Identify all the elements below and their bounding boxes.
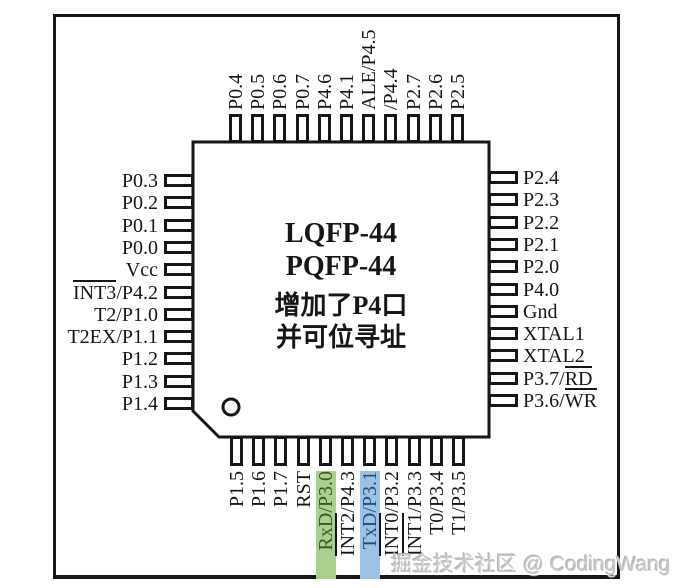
pin-signal: P2.3 (523, 189, 559, 211)
pin-label-14: XTAL2 (523, 346, 655, 366)
pin-lead-39 (164, 286, 194, 299)
pin-label-42: P1.2 (38, 349, 158, 369)
pin-signal: /P3.3 (404, 471, 426, 513)
pin-signal: P0.2 (122, 192, 158, 214)
pin-lead-27 (362, 114, 375, 143)
pin-signal: /P3.2 (381, 471, 403, 513)
pin-signal: P1.7 (270, 471, 292, 507)
pin-signal: P2.2 (523, 212, 559, 234)
pin-label-24: P2.6 (426, 0, 446, 110)
pin-label-17: P4.0 (523, 280, 655, 300)
pin-signal: P2.0 (523, 256, 559, 278)
pin-number-7: 7 (360, 405, 380, 433)
pin-label-26: /P4.4 (381, 0, 401, 110)
pin-signal-overlined: INT3 (73, 280, 116, 304)
pin-lead-26 (384, 114, 397, 143)
pin-signal: /P4.3 (337, 471, 359, 513)
pin-label-36: P0.1 (38, 216, 158, 236)
pin-lead-4 (297, 436, 310, 466)
pin-signal: P1.3 (122, 371, 158, 393)
chip-center-text: LQFP-44 PQFP-44 增加了P4口 并可位寻址 (193, 217, 489, 354)
pin-number-3: 3 (271, 405, 291, 433)
pin-label-33: P0.4 (226, 0, 246, 110)
pin-label-3: P1.7 (271, 471, 291, 579)
pin-signal: /P4.2 (116, 282, 158, 304)
pin-label-18: P2.0 (523, 257, 655, 277)
pin-number-35: 35 (198, 193, 232, 213)
pin-signal: P2.4 (523, 167, 559, 189)
pin-label-30: P0.7 (293, 0, 313, 110)
pin-signal: P1.5 (226, 471, 248, 507)
pin-lead-9 (408, 436, 421, 466)
pin-lead-44 (164, 397, 194, 410)
pin-lead-13 (488, 372, 518, 385)
watermark: 掘金技术社区 @ CodingWang (391, 548, 671, 578)
pin-number-13: 13 (450, 369, 484, 389)
pinout-diagram: 33P0.432P0.531P0.630P0.729P4.628P4.127AL… (0, 0, 679, 588)
pin-signal: P0.7 (292, 74, 314, 110)
pin-label-12: P3.6/WR (523, 391, 655, 411)
pin-label-27: ALE/P4.5 (359, 0, 379, 110)
pin-label-1: P1.5 (227, 471, 247, 579)
pin-number-43: 43 (198, 372, 232, 392)
chip-note: 增加了P4口 并可位寻址 (193, 290, 489, 354)
pin-lead-38 (164, 263, 194, 276)
pin-lead-23 (451, 114, 464, 143)
pin-number-10: 10 (427, 405, 447, 433)
pin-signal: Gnd (523, 301, 557, 323)
pin-label-19: P2.1 (523, 235, 655, 255)
pin-label-40: T2/P1.0 (38, 305, 158, 325)
pin-label-39: INT3/P4.2 (38, 283, 158, 303)
pin-label-32: P0.5 (248, 0, 268, 110)
pin-signal: RxD/P3.0 (315, 471, 337, 550)
pin-label-5: RxD/P3.0 (316, 471, 336, 579)
pin-signal-overlined: WR (565, 388, 597, 412)
pin-label-28: P4.1 (337, 0, 357, 110)
pin-lead-18 (488, 260, 518, 273)
pin-number-12: 12 (450, 391, 484, 411)
pin-lead-34 (164, 174, 194, 187)
pin-number-21: 21 (450, 190, 484, 210)
pin-lead-7 (363, 436, 376, 466)
pin-signal: T2/P1.0 (94, 304, 158, 326)
pin-number-8: 8 (382, 405, 402, 433)
pin-lead-36 (164, 219, 194, 232)
pin-label-21: P2.3 (523, 190, 655, 210)
pin-lead-22 (488, 171, 518, 184)
pin-lead-25 (407, 114, 420, 143)
chip-note-line-1: 增加了P4口 (193, 290, 489, 322)
chip-note-line-2: 并可位寻址 (193, 322, 489, 354)
pin-signal: P4.0 (523, 279, 559, 301)
pin-lead-15 (488, 327, 518, 340)
pin-lead-33 (229, 114, 242, 143)
pin-label-16: Gnd (523, 302, 655, 322)
pin-number-26: 26 (381, 146, 401, 176)
pin-signal: T0/P3.4 (426, 471, 448, 535)
pin-lead-32 (251, 114, 264, 143)
pin-lead-16 (488, 305, 518, 318)
pin-signal: T1/P3.5 (448, 471, 470, 535)
pin-lead-31 (273, 114, 286, 143)
pin-signal: TxD/P3.1 (359, 471, 381, 549)
pin-label-4: RST (294, 471, 314, 579)
pin-number-22: 22 (450, 168, 484, 188)
pin-signal: P0.5 (247, 74, 269, 110)
pin-signal: P2.5 (447, 74, 469, 110)
pin-signal: P0.1 (122, 215, 158, 237)
pin-signal: P2.1 (523, 234, 559, 256)
pin-number-32: 32 (248, 146, 268, 176)
pin-label-22: P2.4 (523, 168, 655, 188)
pin-number-34: 34 (198, 171, 232, 191)
pin-lead-5 (319, 436, 332, 466)
pin-label-37: P0.0 (38, 238, 158, 258)
pin-signal: ALE/P4.5 (358, 29, 380, 110)
pin-number-24: 24 (426, 146, 446, 176)
pin-signal: XTAL2 (523, 345, 585, 367)
pin-signal: P3.7/ (523, 368, 565, 390)
pin-signal: P2.6 (425, 74, 447, 110)
pin-signal: P4.1 (336, 74, 358, 110)
pin-signal: XTAL1 (523, 323, 585, 345)
pin-signal: Vcc (126, 259, 158, 281)
pin-lead-29 (318, 114, 331, 143)
pin-lead-2 (252, 436, 265, 466)
pin-lead-17 (488, 283, 518, 296)
pin-signal: P1.4 (122, 393, 158, 415)
pin-lead-12 (488, 394, 518, 407)
pin-number-29: 29 (315, 146, 335, 176)
pin-signal: P4.6 (314, 74, 336, 110)
pin-lead-37 (164, 241, 194, 254)
pin-label-43: P1.3 (38, 372, 158, 392)
pin-signal: P0.6 (269, 74, 291, 110)
pin-lead-43 (164, 375, 194, 388)
pin-number-5: 5 (316, 405, 336, 433)
pin-number-2: 2 (249, 405, 269, 433)
pin-lead-40 (164, 308, 194, 321)
pin-signal: /P4.4 (380, 68, 402, 110)
pin-label-15: XTAL1 (523, 324, 655, 344)
pin-lead-20 (488, 216, 518, 229)
pin-lead-14 (488, 349, 518, 362)
pin-label-6: INT2/P4.3 (338, 471, 358, 579)
pin-signal: P1.2 (122, 348, 158, 370)
pin-signal-overlined: RD (565, 366, 593, 390)
pin-number-31: 31 (270, 146, 290, 176)
pin-lead-3 (274, 436, 287, 466)
pin-lead-1 (230, 436, 243, 466)
pin-label-2: P1.6 (249, 471, 269, 579)
pin-signal: P0.0 (122, 237, 158, 259)
package-name-lqfp: LQFP-44 (193, 217, 489, 250)
pin-label-25: P2.7 (404, 0, 424, 110)
pin-signal: P0.3 (122, 170, 158, 192)
pin-label-20: P2.2 (523, 213, 655, 233)
pin-lead-10 (430, 436, 443, 466)
pin-number-25: 25 (404, 146, 424, 176)
pin-label-44: P1.4 (38, 394, 158, 414)
pin-number-44: 44 (198, 394, 232, 414)
pin-lead-28 (340, 114, 353, 143)
pin-label-23: P2.5 (448, 0, 468, 110)
pin-label-7: TxD/P3.1 (360, 471, 380, 579)
pin-label-31: P0.6 (270, 0, 290, 110)
pin-lead-19 (488, 238, 518, 251)
pin-label-13: P3.7/RD (523, 369, 655, 389)
pin-signal: P2.7 (403, 74, 425, 110)
pin-number-4: 4 (294, 405, 314, 433)
pin-signal: P1.6 (248, 471, 270, 507)
pin-number-6: 6 (338, 405, 358, 433)
pin-number-30: 30 (293, 146, 313, 176)
pin-lead-24 (429, 114, 442, 143)
pin-label-38: Vcc (38, 260, 158, 280)
pin-lead-30 (296, 114, 309, 143)
pin-lead-42 (164, 352, 194, 365)
pin-label-34: P0.3 (38, 171, 158, 191)
pin-signal-overlined: INT2 (335, 513, 359, 556)
pin-lead-6 (341, 436, 354, 466)
pin-signal: P0.4 (225, 74, 247, 110)
pin-number-27: 27 (359, 146, 379, 176)
pin-signal: T2EX/P1.1 (67, 326, 158, 348)
pin-label-41: T2EX/P1.1 (38, 327, 158, 347)
pin-lead-8 (385, 436, 398, 466)
pin-number-28: 28 (337, 146, 357, 176)
pin-signal: RST (293, 471, 315, 508)
pin-lead-35 (164, 196, 194, 209)
pin-label-29: P4.6 (315, 0, 335, 110)
pin-label-35: P0.2 (38, 193, 158, 213)
pin-signal: P3.6/ (523, 390, 565, 412)
pin-lead-11 (452, 436, 465, 466)
pin-lead-41 (164, 330, 194, 343)
pin-number-9: 9 (405, 405, 425, 433)
pin-lead-21 (488, 193, 518, 206)
package-name-pqfp: PQFP-44 (193, 250, 489, 283)
